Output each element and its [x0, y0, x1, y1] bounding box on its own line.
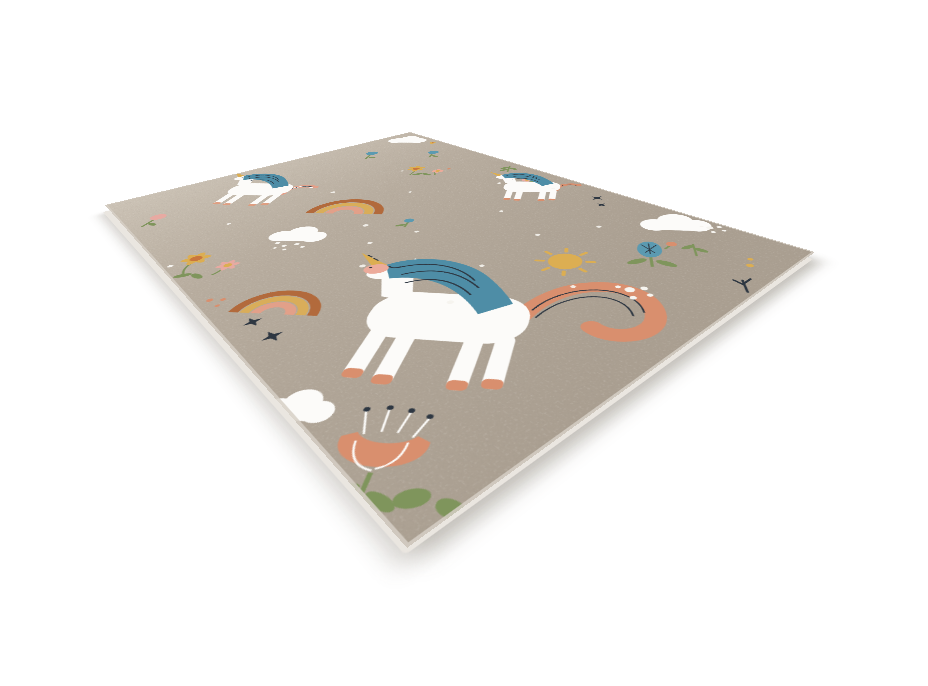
rug-design: [105, 132, 815, 548]
product-photo: [0, 0, 928, 686]
unicorn-rug: [105, 132, 815, 548]
